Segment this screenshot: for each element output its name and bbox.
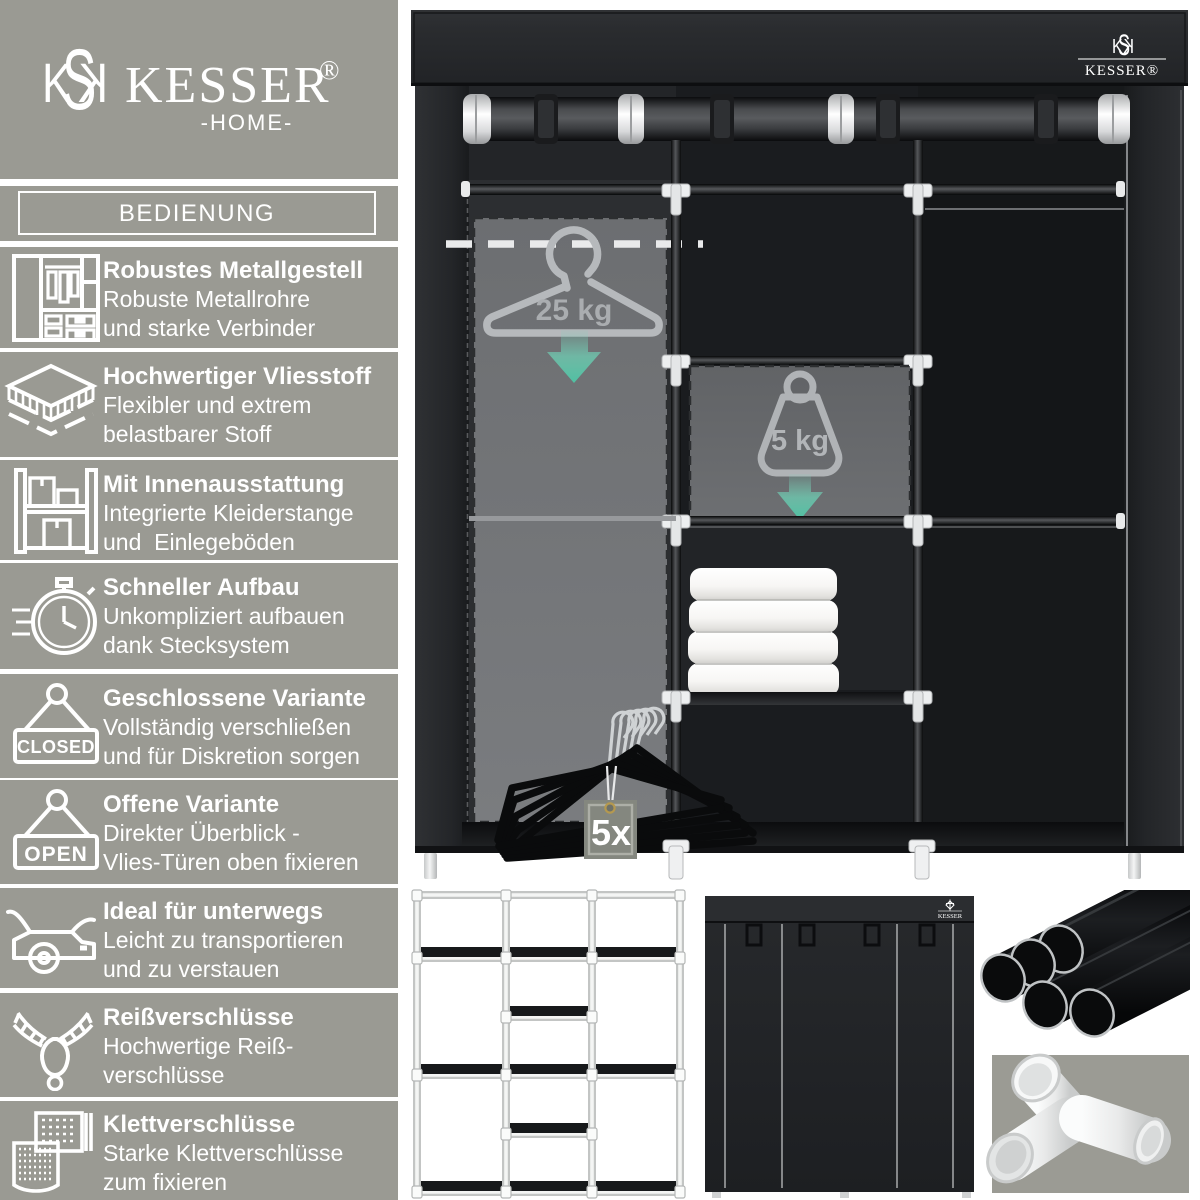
svg-text:S: S [62, 33, 96, 129]
svg-text:OPEN: OPEN [24, 843, 88, 866]
svg-text:5 kg: 5 kg [771, 425, 829, 457]
svg-text:25 kg: 25 kg [536, 294, 613, 327]
svg-text:S: S [1118, 30, 1130, 63]
svg-text:®: ® [319, 55, 340, 85]
svg-text:-HOME-: -HOME- [201, 110, 294, 135]
svg-text:KESSER: KESSER [125, 57, 331, 114]
svg-text:KESSER®: KESSER® [1085, 63, 1159, 79]
svg-text:CLOSED: CLOSED [17, 737, 95, 757]
svg-text:5x: 5x [591, 812, 631, 853]
svg-text:KESSER: KESSER [938, 913, 963, 920]
